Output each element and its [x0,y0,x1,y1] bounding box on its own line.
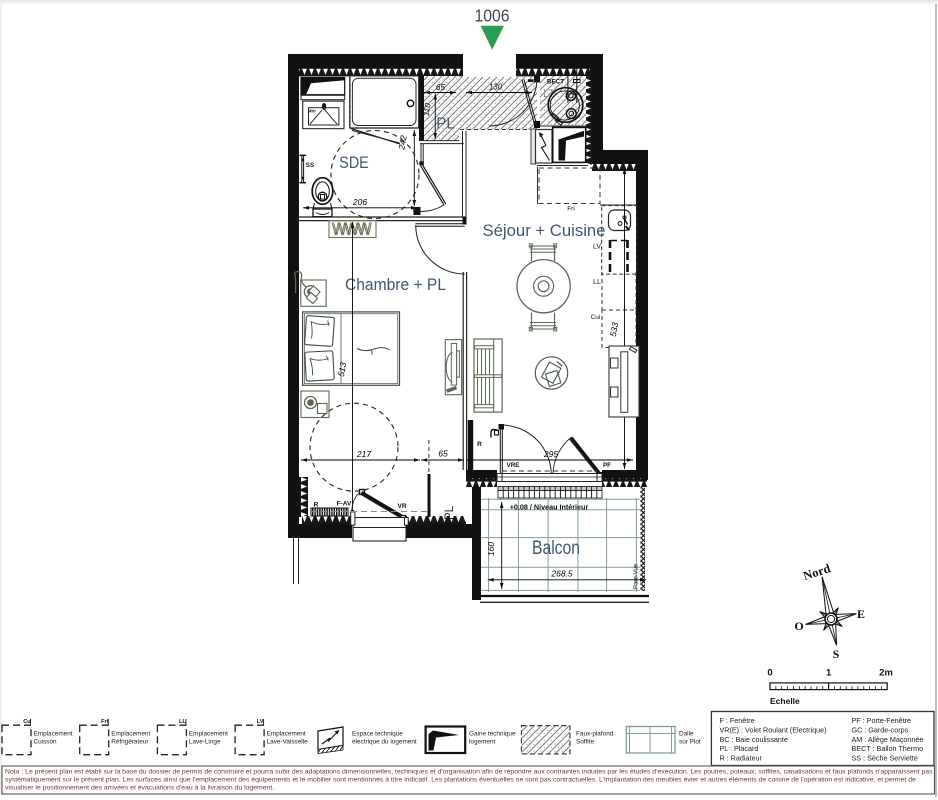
svg-text:S: S [833,647,840,661]
svg-text:O: O [794,619,803,633]
svg-text:visualiser le positionnement d: visualiser le positionnement des arrivée… [5,785,274,792]
svg-text:PL: PL [444,505,456,520]
svg-text:PF: PF [603,462,611,469]
svg-text:R: R [314,502,319,509]
svg-text:logement: logement [469,739,496,746]
svg-text:sur Plot: sur Plot [679,739,701,746]
svg-text:160: 160 [486,542,496,556]
svg-text:LL: LL [179,719,186,725]
svg-text:SDE: SDE [339,153,369,172]
svg-text:0: 0 [767,668,772,679]
svg-text:électrique du logement: électrique du logement [352,739,417,746]
svg-text:65: 65 [436,83,445,92]
svg-text:AM : Allège Maçonnée: AM : Allège Maçonnée [852,735,924,744]
svg-text:Echelle: Echelle [770,696,800,706]
svg-text:Cui: Cui [591,314,601,321]
svg-text:PF : Porte-Fenêtre: PF : Porte-Fenêtre [852,716,912,725]
svg-text:LV: LV [593,244,601,251]
svg-text:R : Radiateur: R : Radiateur [720,754,763,763]
svg-text:Lave-Linge: Lave-Linge [189,739,221,746]
svg-text:Nota : Le présent plan est éta: Nota : Le présent plan est établi sur la… [5,769,933,776]
svg-text:BECT: BECT [547,79,564,86]
svg-text:GC : Garde-corps: GC : Garde-corps [852,725,909,734]
svg-text:130: 130 [489,83,503,92]
svg-text:Espace technique: Espace technique [352,731,403,738]
svg-text:Pare-Vue: Pare-Vue [634,563,640,589]
svg-text:Emplacement: Emplacement [267,731,306,738]
svg-text:Cuisson: Cuisson [34,739,58,746]
svg-text:Dalle: Dalle [679,731,694,738]
svg-text:65: 65 [438,449,448,459]
svg-text:BC : Baie coulissante: BC : Baie coulissante [720,735,788,744]
svg-text:LL: LL [593,279,601,286]
svg-text:206: 206 [352,197,367,207]
svg-text:Réfrigérateur: Réfrigérateur [111,739,149,746]
svg-text:Soffite: Soffite [576,739,594,746]
svg-text:Fri: Fri [101,719,109,725]
svg-text:VR: VR [397,503,406,510]
svg-text:F-AV: F-AV [337,501,352,508]
svg-text:Chambre + PL: Chambre + PL [345,275,446,294]
svg-text:Emplacement: Emplacement [189,731,228,738]
svg-text:Emplacement: Emplacement [111,731,150,738]
svg-text:Séjour + Cuisine: Séjour + Cuisine [483,221,606,240]
svg-text:1: 1 [826,668,832,679]
svg-text:2m: 2m [879,668,893,679]
svg-text:268.5: 268.5 [550,569,573,579]
svg-text:PL: PL [436,116,455,133]
svg-text:295: 295 [543,449,558,459]
svg-text:1006: 1006 [475,6,510,26]
svg-text:VRE: VRE [507,462,520,469]
svg-text:SS: SS [306,162,314,169]
svg-text:systématiquement sur le présen: systématiquement sur le présent plan. Le… [5,777,916,784]
svg-text:Gaine technique: Gaine technique [469,731,516,738]
svg-text:F : Fenêtre: F : Fenêtre [720,716,755,725]
svg-text:E: E [857,607,865,621]
svg-text:PL : Placard: PL : Placard [720,744,759,753]
svg-text:Balcon: Balcon [532,538,580,559]
svg-text:Fri: Fri [567,206,575,213]
svg-text:Faux-plafond: Faux-plafond [576,731,614,738]
svg-text:R: R [477,441,482,448]
svg-text:217: 217 [356,449,371,459]
svg-text:VR(E) : Volet Roulant (Electri: VR(E) : Volet Roulant (Electrique) [720,725,827,734]
svg-text:LV: LV [257,719,264,725]
svg-text:Lave-Vaisselle: Lave-Vaisselle [267,739,309,746]
svg-text:BECT : Ballon Thermo: BECT : Ballon Thermo [852,744,924,753]
svg-text:SS : Sèche Serviette: SS : Sèche Serviette [852,754,918,763]
svg-text:Emplacement: Emplacement [34,731,73,738]
svg-text:Mirr: Mirr [308,109,316,114]
svg-text:+0.08 / Niveau Intérieur: +0.08 / Niveau Intérieur [510,503,589,512]
